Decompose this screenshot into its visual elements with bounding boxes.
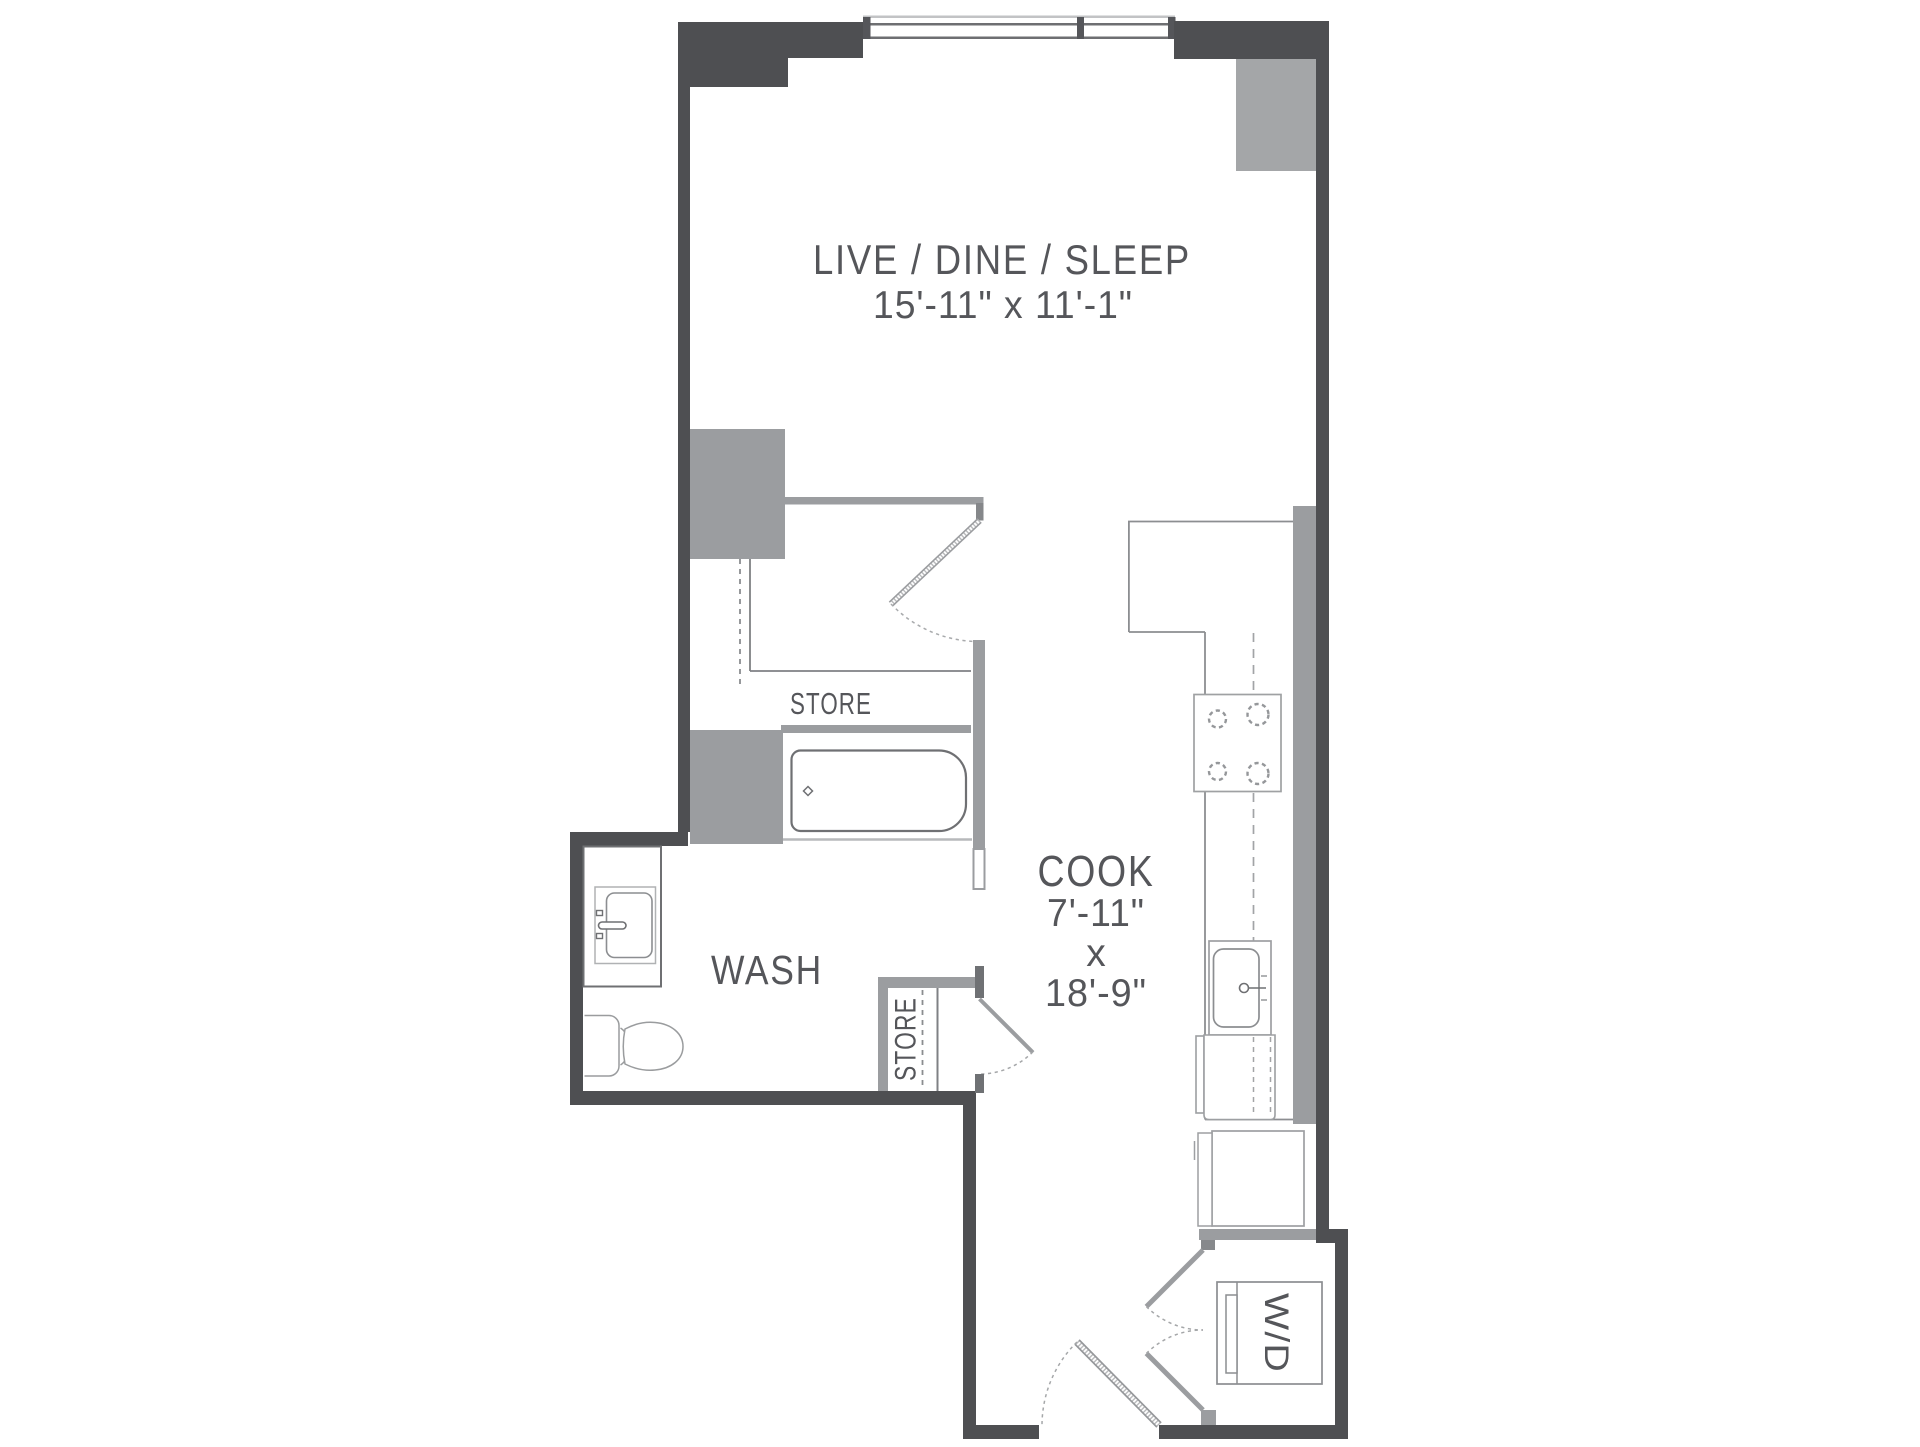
svg-text:LIVE / DINE / SLEEP: LIVE / DINE / SLEEP xyxy=(813,236,1191,283)
svg-text:7'-11": 7'-11" xyxy=(1047,892,1145,935)
svg-text:15'-11" x 11'-1": 15'-11" x 11'-1" xyxy=(873,284,1133,327)
svg-text:STORE: STORE xyxy=(890,997,923,1081)
svg-text:W/D: W/D xyxy=(1257,1293,1295,1373)
svg-text:WASH: WASH xyxy=(711,947,823,993)
svg-text:COOK: COOK xyxy=(1038,847,1155,896)
svg-text:x: x xyxy=(1086,932,1106,975)
svg-text:STORE: STORE xyxy=(790,686,872,721)
svg-text:18'-9": 18'-9" xyxy=(1045,972,1147,1015)
